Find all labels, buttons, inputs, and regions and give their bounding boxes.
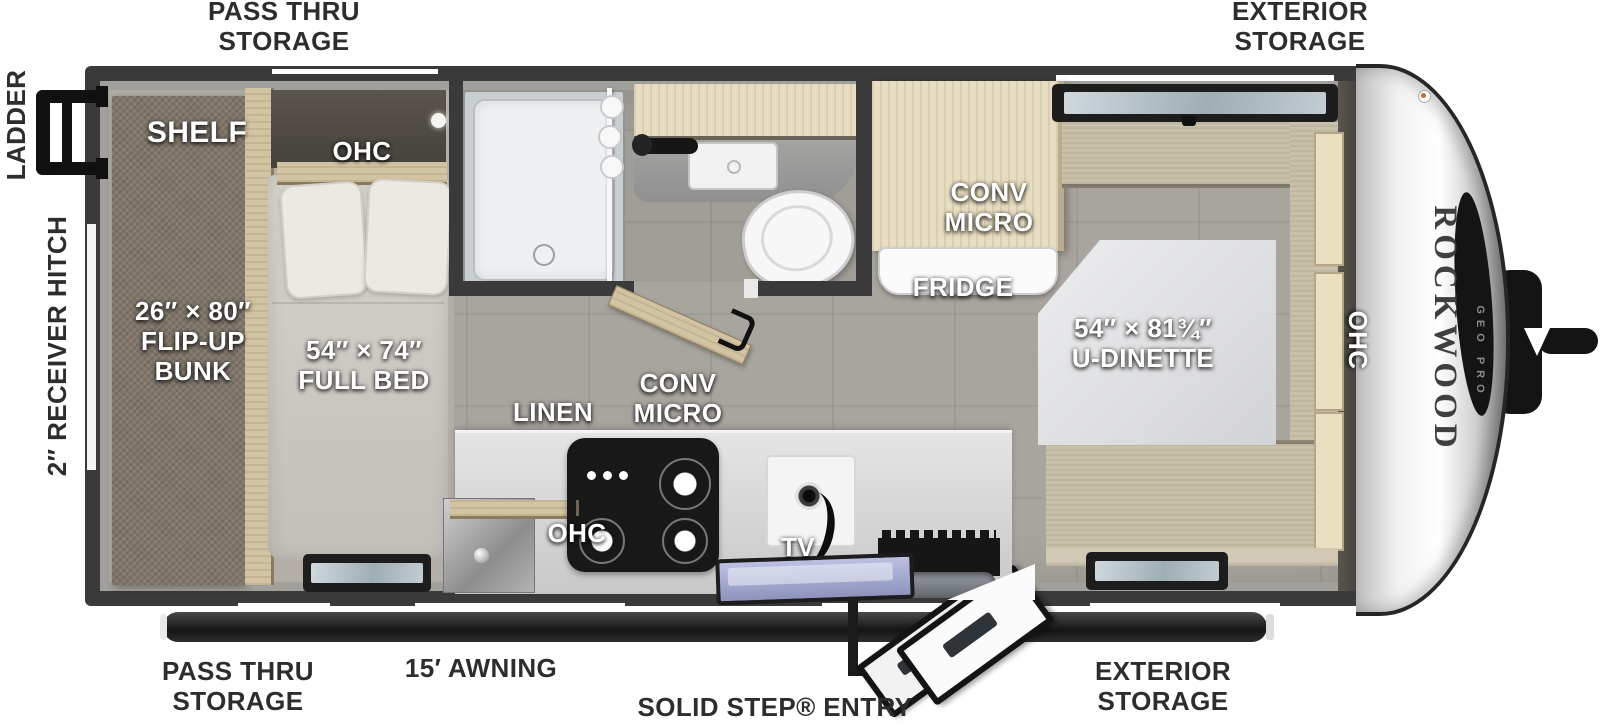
vanity-faucet-base (632, 134, 652, 156)
puck-light (431, 113, 446, 128)
body-trim-slit (1090, 603, 1280, 611)
shower-caddy (596, 95, 626, 185)
countertop-rack-teeth (882, 530, 996, 538)
awning-end-cap (160, 614, 167, 640)
window-latch (1182, 116, 1196, 126)
label-tv: TV (781, 532, 815, 562)
dinette-window-top (1052, 84, 1338, 122)
label-u-dinette: 54″ × 81¾″ U-DINETTE (1072, 313, 1214, 373)
brand-series: GEO PRO (1472, 292, 1488, 412)
shower-drain (533, 244, 555, 266)
bathroom-door-stop (744, 279, 758, 298)
bathroom-wall-right (856, 81, 872, 296)
linen-cabinet-knob (474, 548, 489, 563)
cooktop (567, 438, 719, 572)
label-conv-micro-fridge: CONV MICRO (945, 177, 1034, 237)
dinette-window-bottom (1086, 552, 1228, 590)
top-wall-slit (272, 69, 438, 74)
body-trim-slit (238, 603, 330, 611)
label-solid-step-entry: SOLID STEP® ENTRY (638, 692, 913, 722)
bathroom-wall-left (449, 81, 463, 296)
top-wall-slit (1056, 75, 1334, 81)
label-full-bed: 54″ × 74″ FULL BED (298, 335, 429, 395)
pillow (279, 180, 369, 299)
label-flip-up-bunk: 26″ × 80″ FLIP-UP BUNK (135, 296, 251, 386)
burner (662, 518, 708, 564)
label-ohc-kitchen: OHC (548, 518, 607, 548)
floorplan-diagram: ROCKWOOD GEO PRO PASS THRU STORAGE EXTER… (0, 0, 1600, 724)
dinette-seatback-panel (1314, 272, 1344, 411)
bedroom-window (303, 554, 431, 592)
label-pass-thru-storage-bottom: PASS THRU STORAGE (162, 656, 314, 716)
label-exterior-storage-top: EXTERIOR STORAGE (1232, 0, 1368, 56)
cooktop-knob (603, 471, 612, 480)
cooktop-knob (619, 471, 628, 480)
label-ladder: LADDER (1, 70, 31, 181)
body-trim-slit (415, 603, 625, 611)
kitchen-ohc-shelf-split (576, 500, 579, 516)
label-exterior-storage-bottom: EXTERIOR STORAGE (1095, 656, 1231, 716)
vanity-sink (688, 142, 778, 190)
burner (659, 458, 711, 510)
awning-end-cap (1266, 614, 1274, 640)
marker-light (1418, 90, 1431, 103)
label-receiver-hitch: 2″ RECEIVER HITCH (42, 216, 72, 477)
label-pass-thru-storage-top: PASS THRU STORAGE (208, 0, 360, 56)
label-conv-micro-kitchen: CONV MICRO (634, 368, 723, 428)
awning-roller (163, 612, 1267, 642)
brand-wordmark: ROCKWOOD (1425, 194, 1465, 464)
bathroom-wall-bottom-right (752, 281, 872, 296)
label-awning: 15′ AWNING (405, 653, 557, 683)
bathroom-wall-bottom-left (449, 281, 634, 296)
dinette-seatback-panel (1314, 412, 1344, 551)
vanity-cabinet (634, 84, 856, 142)
label-fridge: FRIDGE (913, 272, 1014, 302)
pillow (363, 178, 453, 296)
label-shelf: SHELF (147, 118, 247, 148)
cooktop-knob (587, 471, 596, 480)
label-linen: LINEN (513, 397, 593, 427)
mattress-seam (272, 302, 444, 304)
label-ohc-dinette: OHC (1343, 311, 1373, 370)
receiver-hitch-bar (87, 224, 96, 470)
dinette-seatback-panel (1314, 132, 1344, 266)
label-ohc-bedroom: OHC (333, 136, 392, 166)
ladder-icon (34, 86, 110, 186)
